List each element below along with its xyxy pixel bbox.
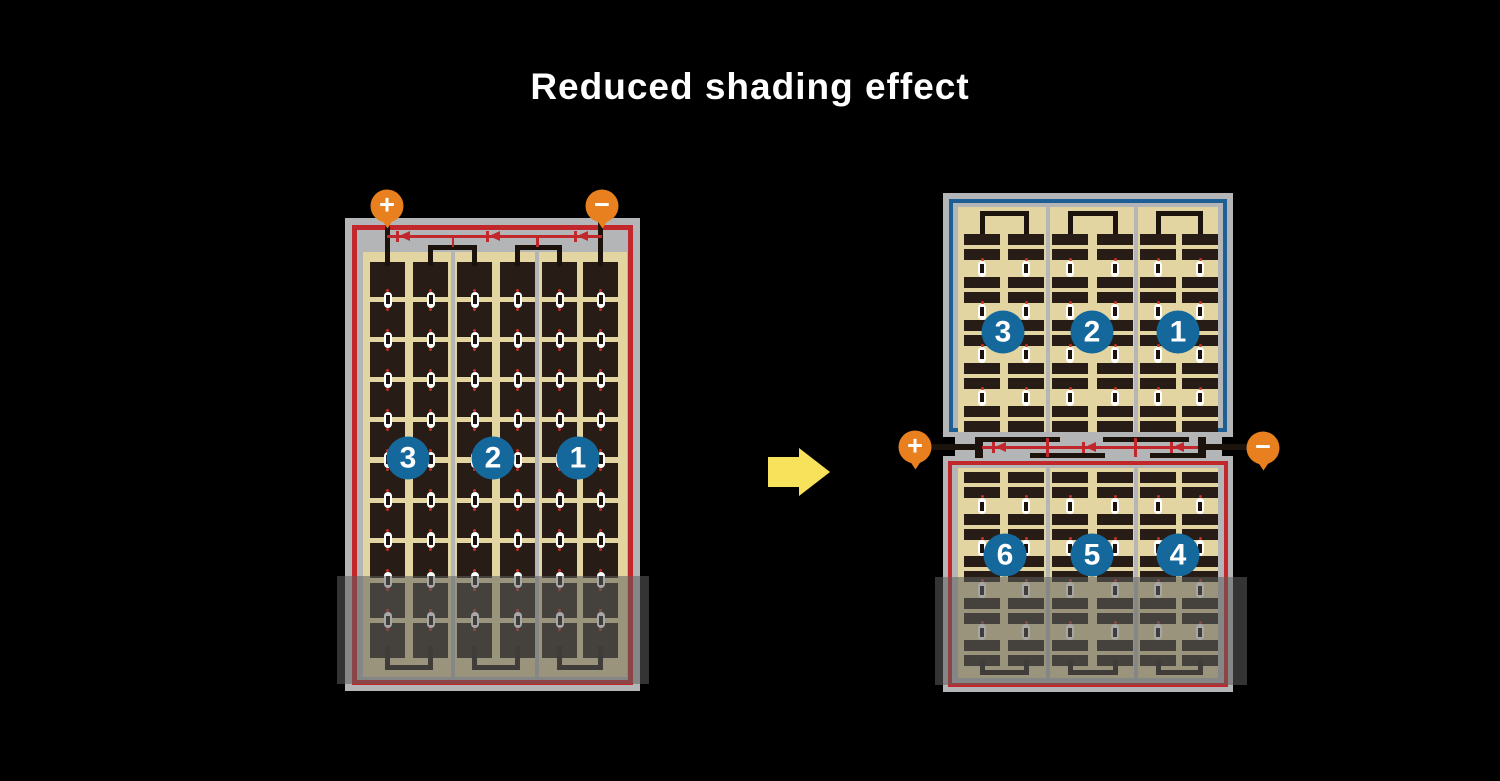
- diagram-canvas: Reduced shading effect + − + − 3 2 1 3 2…: [0, 0, 1500, 781]
- top-bridge-wire: [1068, 211, 1118, 216]
- bypass-diode-3-triangle: [577, 231, 588, 241]
- half-cell: [1182, 277, 1218, 288]
- bypass-diode-1-triangle: [995, 442, 1006, 452]
- connector-dot: [981, 258, 984, 261]
- top-bridge-leg: [1024, 211, 1029, 234]
- negative-lead-wire: [1204, 444, 1248, 450]
- connector-bar: [558, 536, 562, 545]
- connector-bar: [1156, 502, 1160, 511]
- top-bridge-leg: [980, 211, 985, 234]
- connector-dot: [558, 348, 561, 351]
- connector-dot: [599, 308, 602, 311]
- connector-bar: [1113, 264, 1117, 273]
- connector-bar: [558, 496, 562, 505]
- top-bridge-wire: [980, 211, 1029, 216]
- half-cell: [1140, 472, 1176, 483]
- connector-bar: [1024, 502, 1028, 511]
- half-cell: [1140, 421, 1176, 432]
- half-cell: [1008, 421, 1044, 432]
- connector-bar: [1024, 307, 1028, 316]
- bypass-diode-3-triangle: [1173, 442, 1184, 452]
- half-cell: [1008, 363, 1044, 374]
- connector-bar: [1113, 544, 1117, 553]
- half-cell: [1140, 406, 1176, 417]
- half-cell: [1097, 234, 1133, 245]
- half-cell: [1140, 363, 1176, 374]
- top-bridge-leg: [1068, 211, 1073, 234]
- connector-dot: [1025, 387, 1028, 390]
- right-panel-positive-terminal: +: [899, 431, 932, 464]
- connector-bar: [1068, 264, 1072, 273]
- connector-dot: [1114, 301, 1117, 304]
- connector-bar: [1113, 307, 1117, 316]
- connector-bar: [558, 375, 562, 384]
- connector-bar: [1198, 393, 1202, 402]
- minus-sign: −: [594, 192, 610, 219]
- connector-bar: [1198, 502, 1202, 511]
- connector-bar: [386, 415, 390, 424]
- connector-dot: [516, 489, 519, 492]
- connector-bar: [516, 496, 520, 505]
- connector-bar: [429, 496, 433, 505]
- half-cell: [1097, 472, 1133, 483]
- terminal-tail: [381, 220, 393, 229]
- connector-dot: [473, 348, 476, 351]
- connector-dot: [1025, 537, 1028, 540]
- connector-dot: [1199, 258, 1202, 261]
- half-cell: [1008, 234, 1044, 245]
- connector-dot: [429, 468, 432, 471]
- connector-bar: [386, 536, 390, 545]
- connector-dot: [1114, 387, 1117, 390]
- connector-dot: [473, 489, 476, 492]
- module-graphics-layer: [0, 0, 1500, 781]
- connector-dot: [516, 329, 519, 332]
- string-badge-left-2: 2: [472, 437, 515, 480]
- connector-dot: [386, 289, 389, 292]
- left-module-negative-terminal: −: [586, 190, 619, 223]
- connector-bar: [429, 335, 433, 344]
- connector-dot: [1199, 537, 1202, 540]
- half-cell: [964, 472, 1000, 483]
- connector-dot: [429, 449, 432, 452]
- half-cell: [1052, 363, 1088, 374]
- connector-dot: [599, 449, 602, 452]
- connector-dot: [1199, 301, 1202, 304]
- half-cell: [964, 363, 1000, 374]
- connector-dot: [1069, 537, 1072, 540]
- top-bridge-wire: [1156, 211, 1203, 216]
- string-badge-left-3: 3: [387, 437, 430, 480]
- half-cell: [1052, 421, 1088, 432]
- bypass-diode-2-triangle: [1085, 442, 1096, 452]
- half-cell: [1140, 277, 1176, 288]
- connector-bar: [1024, 264, 1028, 273]
- connector-dot: [599, 468, 602, 471]
- connector-dot: [599, 369, 602, 372]
- bus-bottom-bar: [1030, 453, 1105, 458]
- connector-dot: [429, 348, 432, 351]
- half-cell: [1182, 421, 1218, 432]
- connector-dot: [386, 348, 389, 351]
- string-badge-top-2: 2: [1071, 311, 1114, 354]
- string-badge-left-1: 1: [557, 437, 600, 480]
- connector-dot: [599, 428, 602, 431]
- half-cell: [1097, 277, 1133, 288]
- connector-dot: [1069, 495, 1072, 498]
- left-module-positive-terminal: +: [371, 190, 404, 223]
- connector-bar: [1198, 264, 1202, 273]
- connector-bar: [429, 415, 433, 424]
- connector-dot: [516, 308, 519, 311]
- half-cell: [1097, 363, 1133, 374]
- connector-dot: [386, 308, 389, 311]
- connector-bar: [599, 415, 603, 424]
- connector-bar: [386, 375, 390, 384]
- connector-dot: [558, 289, 561, 292]
- connector-bar: [980, 264, 984, 273]
- string-badge-bottom-6: 6: [984, 534, 1027, 577]
- string-separator: [1134, 207, 1138, 432]
- connector-dot: [599, 348, 602, 351]
- connector-dot: [599, 508, 602, 511]
- connector-bar: [558, 295, 562, 304]
- connector-dot: [429, 409, 432, 412]
- connector-dot: [473, 388, 476, 391]
- connector-dot: [1199, 495, 1202, 498]
- half-cell: [1008, 514, 1044, 525]
- connector-bar: [599, 295, 603, 304]
- connector-bar: [473, 375, 477, 384]
- connector-bar: [599, 375, 603, 384]
- connector-dot: [1157, 537, 1160, 540]
- transition-arrow-head-icon: [799, 448, 830, 496]
- half-cell: [1182, 472, 1218, 483]
- connector-dot: [599, 388, 602, 391]
- connector-bar: [429, 295, 433, 304]
- string-badge-top-1: 1: [1157, 311, 1200, 354]
- connector-dot: [1025, 344, 1028, 347]
- connector-dot: [473, 329, 476, 332]
- diode-tap: [536, 236, 539, 247]
- bypass-diode-2-triangle: [489, 231, 500, 241]
- connector-bar: [980, 350, 984, 359]
- top-bridge-leg: [472, 245, 477, 266]
- connector-bar: [1113, 393, 1117, 402]
- connector-bar: [980, 393, 984, 402]
- half-cell: [1097, 421, 1133, 432]
- diode-tap: [1134, 438, 1137, 457]
- connector-dot: [981, 387, 984, 390]
- connector-dot: [516, 369, 519, 372]
- connector-bar: [1113, 502, 1117, 511]
- diode-tap: [1046, 438, 1049, 457]
- transition-arrow-icon: [768, 457, 799, 487]
- connector-dot: [386, 369, 389, 372]
- connector-dot: [1157, 301, 1160, 304]
- connector-bar: [1024, 350, 1028, 359]
- connector-dot: [558, 308, 561, 311]
- connector-dot: [1157, 495, 1160, 498]
- connector-dot: [558, 369, 561, 372]
- connector-dot: [473, 308, 476, 311]
- half-cell: [1182, 363, 1218, 374]
- connector-dot: [516, 348, 519, 351]
- connector-dot: [1157, 344, 1160, 347]
- diode-tap: [452, 236, 455, 247]
- connector-dot: [558, 388, 561, 391]
- connector-dot: [599, 489, 602, 492]
- connector-dot: [1025, 495, 1028, 498]
- connector-bar: [516, 295, 520, 304]
- connector-bar: [1156, 393, 1160, 402]
- half-cell: [1097, 514, 1133, 525]
- connector-bar: [429, 536, 433, 545]
- connector-bar: [516, 415, 520, 424]
- connector-dot: [516, 388, 519, 391]
- shade-overlay-left: [337, 576, 649, 684]
- connector-bar: [1113, 350, 1117, 359]
- half-cell: [1052, 472, 1088, 483]
- connector-bar: [516, 335, 520, 344]
- half-cell: [1182, 406, 1218, 417]
- right-panel-negative-terminal: −: [1247, 432, 1280, 465]
- connector-dot: [386, 409, 389, 412]
- shade-overlay-right: [935, 577, 1247, 685]
- half-cell: [1052, 234, 1088, 245]
- half-cell: [964, 421, 1000, 432]
- connector-bar: [1068, 393, 1072, 402]
- connector-dot: [429, 329, 432, 332]
- bypass-diode-1-triangle: [399, 231, 410, 241]
- connector-dot: [558, 428, 561, 431]
- connector-bar: [599, 335, 603, 344]
- half-cell: [964, 277, 1000, 288]
- connector-bar: [516, 455, 520, 464]
- connector-bar: [473, 496, 477, 505]
- bus-bottom-bar: [1150, 453, 1200, 458]
- top-bridge-leg: [557, 245, 562, 266]
- connector-dot: [386, 428, 389, 431]
- connector-dot: [516, 468, 519, 471]
- terminal-tail: [596, 220, 608, 229]
- half-cell: [1008, 406, 1044, 417]
- terminal-tail: [1257, 462, 1269, 471]
- connector-dot: [429, 388, 432, 391]
- connector-dot: [386, 388, 389, 391]
- plus-sign: +: [379, 192, 395, 219]
- connector-dot: [1069, 344, 1072, 347]
- connector-dot: [599, 409, 602, 412]
- half-cell: [1182, 234, 1218, 245]
- connector-dot: [1157, 258, 1160, 261]
- half-cell: [1052, 406, 1088, 417]
- string-badge-bottom-5: 5: [1071, 534, 1114, 577]
- half-cell: [1008, 472, 1044, 483]
- connector-dot: [429, 308, 432, 311]
- terminal-tail: [909, 461, 921, 470]
- string-separator: [1046, 207, 1050, 432]
- connector-dot: [516, 508, 519, 511]
- connector-bar: [1068, 350, 1072, 359]
- connector-bar: [473, 415, 477, 424]
- top-bridge-leg: [428, 245, 433, 266]
- string-badge-top-3: 3: [982, 311, 1025, 354]
- connector-bar: [558, 415, 562, 424]
- half-cell: [964, 406, 1000, 417]
- positive-lead-wire: [930, 444, 976, 450]
- half-cell: [1182, 514, 1218, 525]
- connector-bar: [1198, 307, 1202, 316]
- connector-bar: [980, 307, 984, 316]
- connector-dot: [981, 495, 984, 498]
- connector-bar: [516, 375, 520, 384]
- connector-dot: [473, 428, 476, 431]
- connector-bar: [516, 536, 520, 545]
- minus-sign: −: [1255, 434, 1271, 461]
- half-cell: [964, 234, 1000, 245]
- connector-dot: [558, 409, 561, 412]
- half-cell: [1140, 234, 1176, 245]
- connector-bar: [473, 295, 477, 304]
- connector-bar: [473, 335, 477, 344]
- connector-dot: [516, 289, 519, 292]
- connector-dot: [981, 344, 984, 347]
- half-cell: [1140, 514, 1176, 525]
- connector-bar: [1156, 350, 1160, 359]
- connector-dot: [429, 369, 432, 372]
- half-cell: [1052, 277, 1088, 288]
- connector-dot: [429, 289, 432, 292]
- connector-dot: [1069, 387, 1072, 390]
- connector-dot: [473, 289, 476, 292]
- connector-dot: [1025, 301, 1028, 304]
- plus-sign: +: [907, 433, 923, 460]
- connector-bar: [599, 536, 603, 545]
- connector-dot: [1157, 387, 1160, 390]
- connector-bar: [980, 502, 984, 511]
- connector-dot: [473, 409, 476, 412]
- connector-dot: [558, 489, 561, 492]
- top-bridge-leg: [515, 245, 520, 266]
- connector-dot: [429, 428, 432, 431]
- connector-dot: [599, 329, 602, 332]
- connector-dot: [473, 508, 476, 511]
- half-cell: [1052, 514, 1088, 525]
- connector-dot: [1114, 344, 1117, 347]
- connector-dot: [473, 369, 476, 372]
- connector-bar: [1068, 307, 1072, 316]
- connector-bar: [1198, 350, 1202, 359]
- connector-dot: [1114, 495, 1117, 498]
- connector-dot: [1025, 258, 1028, 261]
- connector-dot: [558, 508, 561, 511]
- connector-bar: [1068, 502, 1072, 511]
- connector-dot: [981, 537, 984, 540]
- connector-bar: [386, 295, 390, 304]
- connector-dot: [386, 329, 389, 332]
- connector-dot: [386, 508, 389, 511]
- top-bridge-leg: [1113, 211, 1118, 234]
- connector-bar: [599, 496, 603, 505]
- connector-dot: [1069, 258, 1072, 261]
- connector-dot: [1114, 537, 1117, 540]
- connector-dot: [1069, 301, 1072, 304]
- string-badge-bottom-4: 4: [1157, 534, 1200, 577]
- connector-dot: [386, 489, 389, 492]
- connector-bar: [473, 536, 477, 545]
- half-cell: [964, 514, 1000, 525]
- top-bridge-wire: [515, 245, 562, 250]
- connector-bar: [386, 496, 390, 505]
- connector-dot: [429, 508, 432, 511]
- connector-dot: [516, 428, 519, 431]
- connector-bar: [1156, 307, 1160, 316]
- half-cell: [1008, 277, 1044, 288]
- top-bridge-leg: [1156, 211, 1161, 234]
- connector-dot: [1199, 344, 1202, 347]
- connector-dot: [429, 489, 432, 492]
- connector-bar: [386, 335, 390, 344]
- connector-dot: [1114, 258, 1117, 261]
- connector-bar: [1156, 264, 1160, 273]
- half-cell: [1097, 406, 1133, 417]
- top-bridge-leg: [1198, 211, 1203, 234]
- connector-bar: [1024, 393, 1028, 402]
- connector-bar: [429, 375, 433, 384]
- connector-dot: [1199, 387, 1202, 390]
- connector-dot: [981, 301, 984, 304]
- connector-dot: [516, 409, 519, 412]
- connector-bar: [558, 335, 562, 344]
- connector-dot: [599, 289, 602, 292]
- connector-dot: [558, 329, 561, 332]
- connector-dot: [516, 449, 519, 452]
